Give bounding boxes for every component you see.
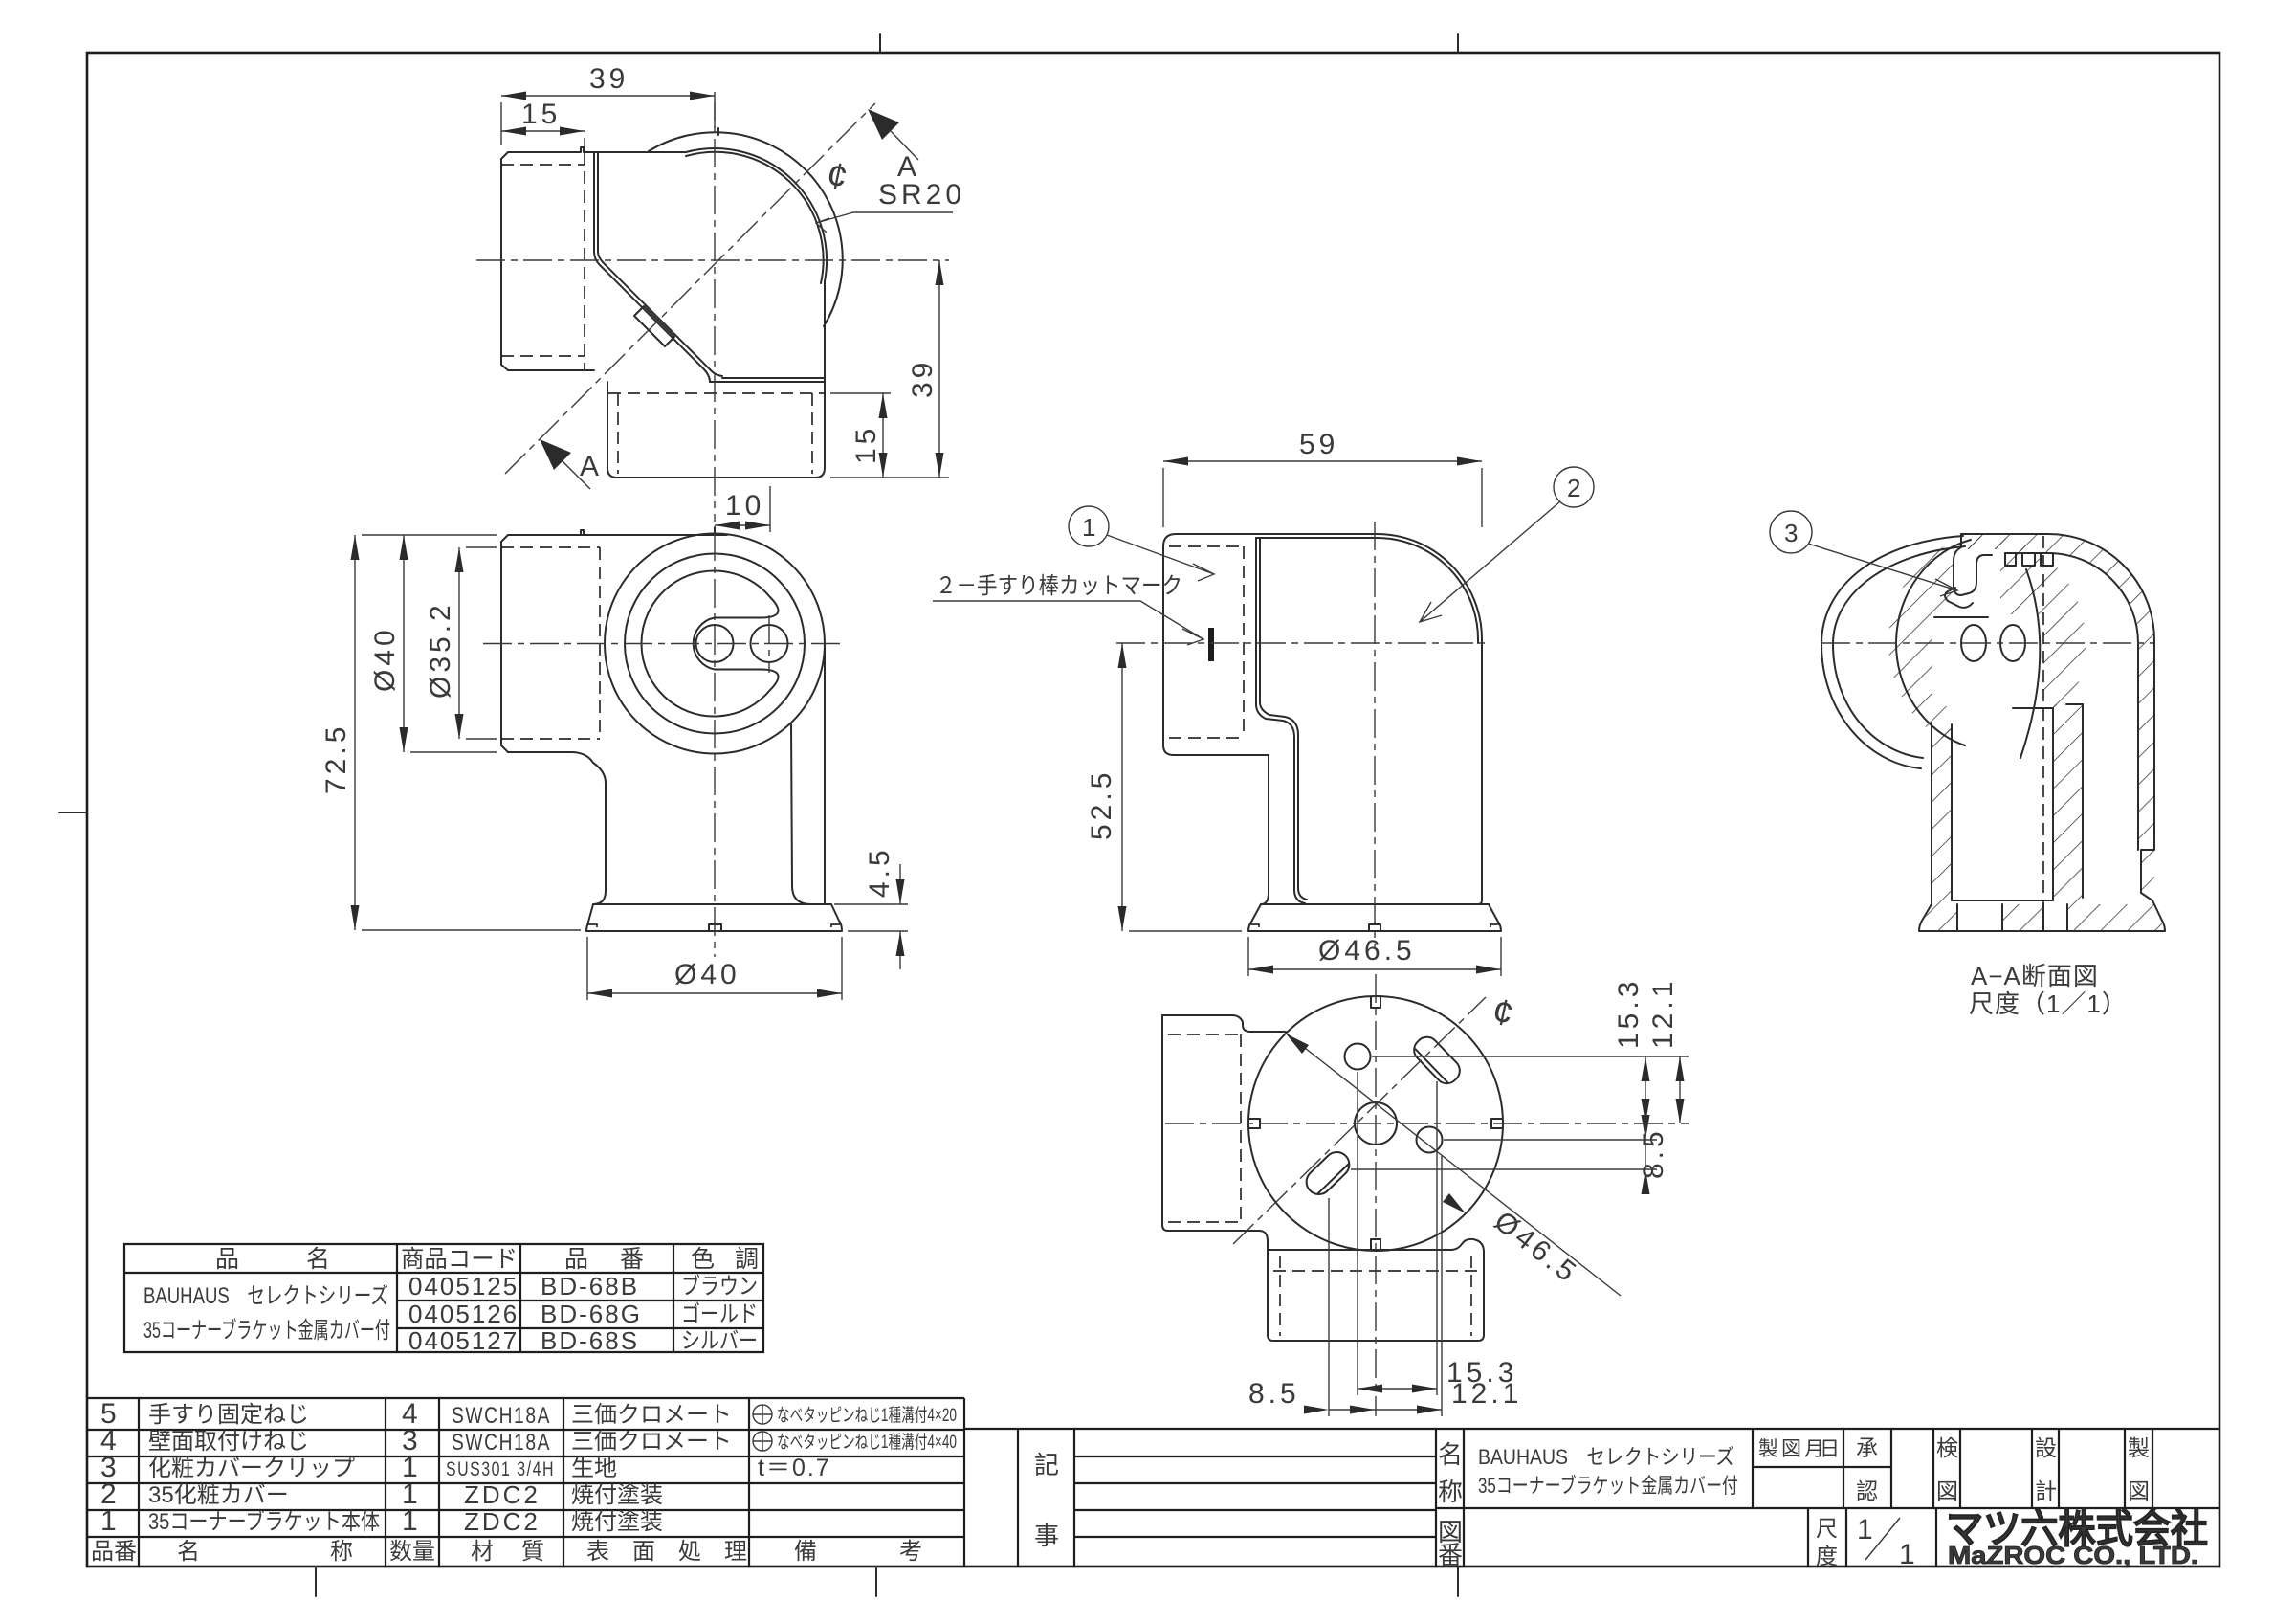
svg-text:1: 1: [1857, 1514, 1877, 1545]
svg-text:8.5: 8.5: [1638, 1127, 1669, 1179]
svg-text:質: 質: [521, 1539, 544, 1565]
svg-text:1: 1: [1082, 513, 1095, 542]
svg-text:SWCH18A: SWCH18A: [452, 1430, 551, 1456]
svg-text:シルバー: シルバー: [681, 1328, 758, 1354]
svg-text:焼付塗装: 焼付塗装: [571, 1482, 663, 1508]
svg-text:39: 39: [589, 63, 629, 95]
svg-text:手すり固定ねじ: 手すり固定ねじ: [148, 1402, 309, 1428]
svg-text:0405127: 0405127: [408, 1326, 519, 1355]
svg-text:名: 名: [306, 1246, 330, 1273]
svg-text:BD-68B: BD-68B: [541, 1272, 639, 1301]
svg-text:SR20: SR20: [878, 179, 965, 211]
svg-text:品番: 品番: [91, 1539, 137, 1565]
svg-text:承: 承: [1856, 1435, 1878, 1460]
svg-text:72.5: 72.5: [320, 723, 352, 794]
svg-text:0405125: 0405125: [408, 1272, 519, 1301]
svg-text:35コーナーブラケット本体: 35コーナーブラケット本体: [148, 1509, 380, 1535]
svg-text:２－手すり棒カットマーク: ２－手すり棒カットマーク: [936, 573, 1182, 599]
svg-text:品: 品: [564, 1246, 588, 1273]
svg-text:MaZROC CO., LTD.: MaZROC CO., LTD.: [1948, 1541, 2198, 1569]
svg-text:15: 15: [850, 425, 882, 464]
svg-text:商品コード: 商品コード: [401, 1246, 518, 1273]
svg-text:材: 材: [471, 1539, 494, 1565]
svg-text:製: 製: [1758, 1438, 1778, 1460]
svg-text:52.5: 52.5: [1086, 769, 1117, 840]
svg-text:35コーナーブラケット金属カバー付: 35コーナーブラケット金属カバー付: [143, 1318, 390, 1344]
svg-text:名: 名: [1438, 1440, 1463, 1469]
svg-text:15: 15: [521, 99, 561, 130]
svg-text:12.1: 12.1: [1451, 1378, 1522, 1410]
svg-text:2: 2: [1567, 474, 1580, 502]
svg-text:認: 認: [1856, 1478, 1878, 1503]
svg-text:数量: 数量: [389, 1539, 435, 1565]
svg-text:備: 備: [794, 1539, 817, 1565]
svg-text:なべタッピンねじ1種溝付4×40: なべタッピンねじ1種溝付4×40: [777, 1432, 957, 1453]
svg-text:番: 番: [1438, 1541, 1463, 1569]
svg-text:ゴールド: ゴールド: [681, 1301, 758, 1327]
svg-text:4.5: 4.5: [864, 846, 895, 898]
svg-text:図: 図: [1781, 1438, 1801, 1460]
svg-text:色: 色: [691, 1246, 715, 1273]
svg-text:BD-68S: BD-68S: [541, 1326, 639, 1355]
svg-text:度: 度: [1816, 1544, 1838, 1568]
svg-text:表 面 処 理: 表 面 処 理: [586, 1539, 747, 1565]
svg-text:称: 称: [330, 1539, 353, 1565]
svg-text:品: 品: [215, 1246, 239, 1273]
svg-text:Ø46.5: Ø46.5: [1318, 935, 1416, 967]
svg-text:化粧カバークリップ: 化粧カバークリップ: [148, 1456, 355, 1481]
svg-text:考: 考: [899, 1539, 922, 1565]
svg-text:A−A断面図: A−A断面図: [1971, 962, 2099, 990]
svg-text:Ø35.2: Ø35.2: [425, 601, 456, 699]
svg-text:1: 1: [1899, 1539, 1919, 1570]
svg-text:三価クロメート: 三価クロメート: [571, 1429, 732, 1455]
svg-text:t＝0.7: t＝0.7: [758, 1455, 831, 1481]
svg-text:設: 設: [2035, 1435, 2057, 1460]
svg-text:ブラウン: ブラウン: [681, 1274, 758, 1300]
svg-text:事: 事: [1034, 1522, 1059, 1550]
svg-text:称: 称: [1438, 1478, 1463, 1506]
svg-text:1: 1: [100, 1505, 121, 1537]
svg-text:図: 図: [2128, 1478, 2150, 1503]
svg-text:なべタッピンねじ1種溝付4×20: なべタッピンねじ1種溝付4×20: [777, 1405, 957, 1426]
svg-text:検: 検: [1936, 1435, 1958, 1460]
svg-text:生地: 生地: [571, 1456, 617, 1481]
svg-text:名: 名: [177, 1539, 200, 1565]
svg-text:Ø40: Ø40: [369, 626, 401, 692]
svg-text:12.1: 12.1: [1647, 978, 1679, 1049]
svg-text:Ø40: Ø40: [674, 959, 740, 990]
svg-text:A: A: [580, 451, 599, 482]
svg-text:SUS301 3/4H: SUS301 3/4H: [446, 1458, 555, 1480]
svg-text:BAUHAUS セレクトシリーズ: BAUHAUS セレクトシリーズ: [143, 1283, 388, 1309]
svg-text:尺: 尺: [1816, 1516, 1838, 1541]
svg-text:BAUHAUS セレクトシリーズ: BAUHAUS セレクトシリーズ: [1478, 1445, 1734, 1469]
svg-text:番: 番: [620, 1246, 644, 1273]
svg-text:焼付塗装: 焼付塗装: [571, 1509, 663, 1535]
svg-text:ZDC2: ZDC2: [464, 1480, 541, 1509]
svg-text:BD-68G: BD-68G: [541, 1300, 642, 1328]
svg-text:0405126: 0405126: [408, 1300, 519, 1328]
svg-text:SWCH18A: SWCH18A: [452, 1403, 551, 1429]
svg-text:ZDC2: ZDC2: [464, 1507, 541, 1536]
svg-text:3: 3: [1784, 519, 1798, 547]
svg-text:1: 1: [402, 1505, 422, 1537]
svg-text:三価クロメート: 三価クロメート: [571, 1402, 732, 1428]
svg-text:計: 計: [2035, 1478, 2057, 1503]
svg-text:35化粧カバー: 35化粧カバー: [148, 1482, 289, 1508]
svg-text:製: 製: [2128, 1435, 2150, 1460]
svg-text:図: 図: [1936, 1478, 1958, 1503]
svg-text:日: 日: [1820, 1438, 1840, 1460]
svg-text:59: 59: [1299, 429, 1338, 460]
svg-text:39: 39: [907, 359, 938, 398]
svg-text:壁面取付けねじ: 壁面取付けねじ: [148, 1429, 309, 1455]
svg-text:尺度（1／1）: 尺度（1／1）: [1969, 989, 2128, 1018]
svg-text:8.5: 8.5: [1248, 1378, 1300, 1410]
svg-text:15.3: 15.3: [1613, 978, 1645, 1049]
svg-text:調: 調: [735, 1246, 759, 1273]
svg-text:記: 記: [1034, 1451, 1059, 1479]
svg-text:10: 10: [725, 490, 764, 522]
svg-text:35コーナーブラケット金属カバー付: 35コーナーブラケット金属カバー付: [1478, 1474, 1738, 1498]
